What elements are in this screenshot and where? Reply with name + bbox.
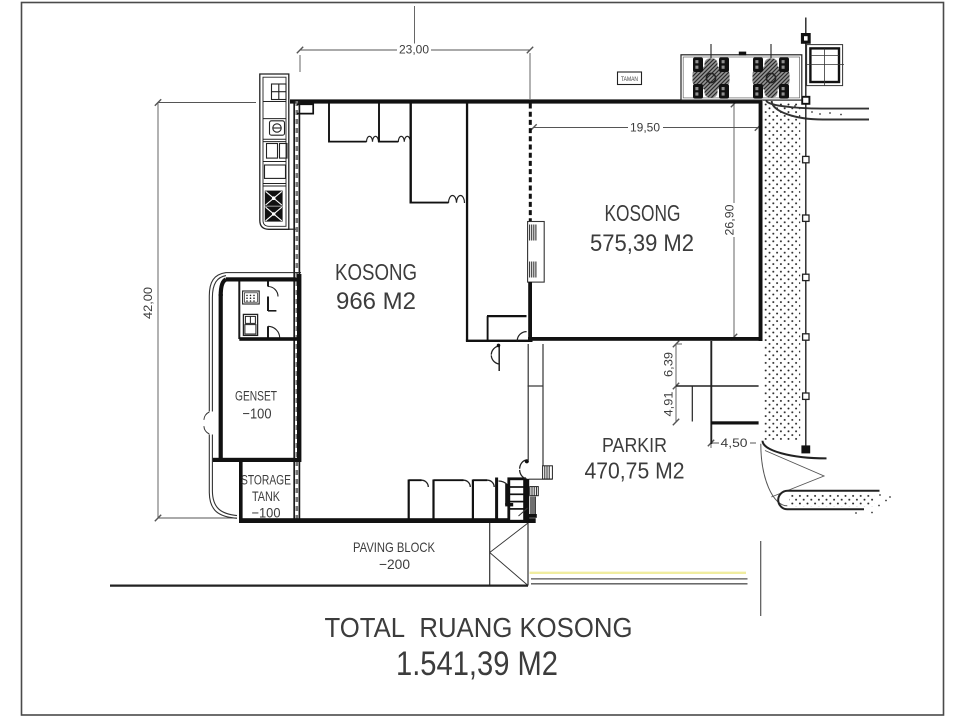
svg-text:PAVING BLOCK: PAVING BLOCK <box>353 539 436 555</box>
svg-text:6,39: 6,39 <box>662 352 676 377</box>
svg-text:966 M2: 966 M2 <box>336 288 416 315</box>
svg-text:470,75 M2: 470,75 M2 <box>585 458 685 484</box>
svg-text:PARKIR: PARKIR <box>602 434 667 457</box>
svg-text:GENSET: GENSET <box>235 389 277 404</box>
svg-text:−100: −100 <box>243 407 272 423</box>
svg-text:KOSONG: KOSONG <box>335 259 417 285</box>
svg-text:575,39 M2: 575,39 M2 <box>590 230 694 257</box>
svg-text:1.541,39 M2: 1.541,39 M2 <box>396 645 558 683</box>
svg-text:4,91: 4,91 <box>662 391 676 416</box>
svg-text:TOTAL RUANG KOSONG: TOTAL RUANG KOSONG <box>325 612 633 643</box>
svg-text:26,90: 26,90 <box>723 204 737 235</box>
svg-text:STORAGE: STORAGE <box>241 473 291 488</box>
svg-text:−100: −100 <box>252 505 281 521</box>
svg-text:KOSONG: KOSONG <box>605 200 681 226</box>
svg-text:23,00: 23,00 <box>399 43 429 57</box>
svg-text:−200: −200 <box>379 556 410 572</box>
svg-text:4,50: 4,50 <box>721 436 748 450</box>
svg-text:TANK: TANK <box>252 489 280 504</box>
svg-text:19,50: 19,50 <box>630 121 660 135</box>
svg-text:42,00: 42,00 <box>141 287 155 319</box>
svg-text:TAMAN: TAMAN <box>621 76 638 83</box>
